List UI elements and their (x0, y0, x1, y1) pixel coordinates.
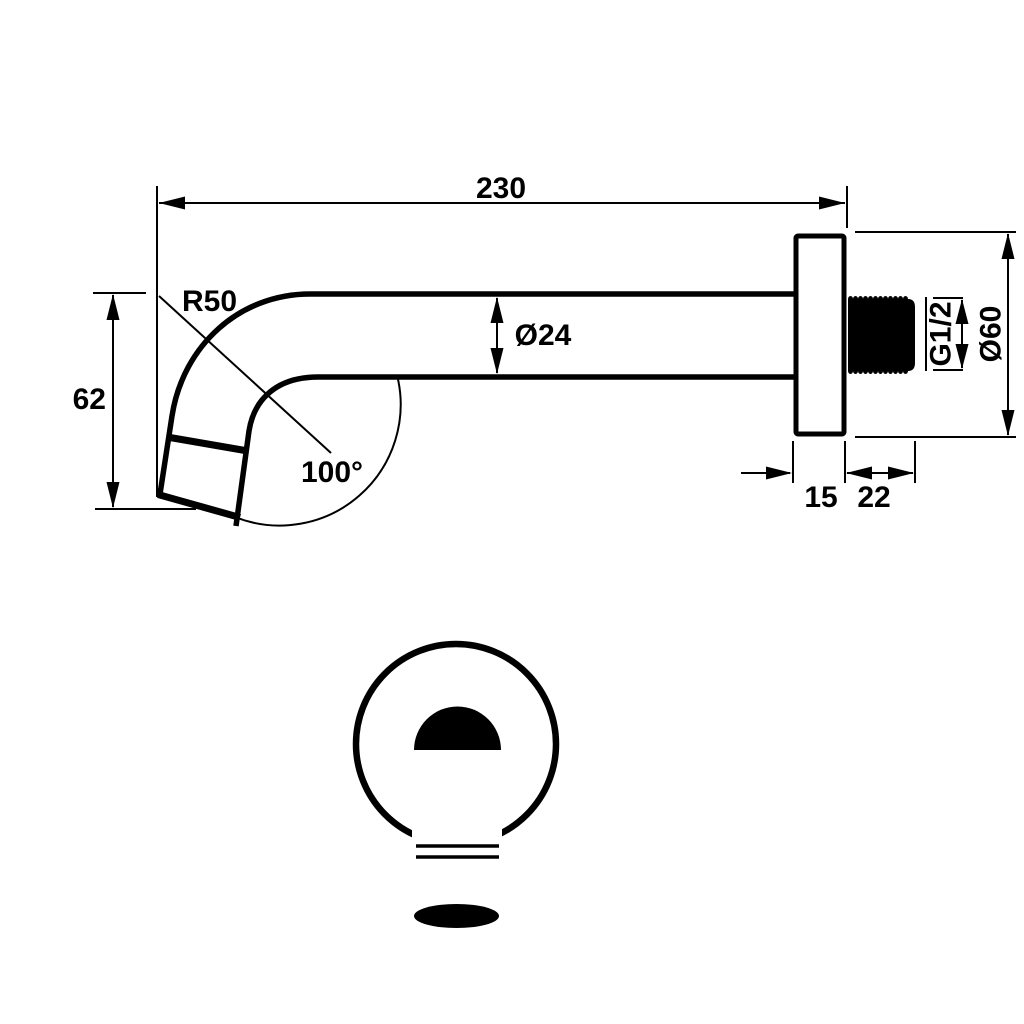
arrowhead-right-of-22 (888, 467, 914, 480)
thread (848, 296, 915, 374)
dim-flange-depth-and-thread-length: 15 22 (741, 441, 915, 514)
pipe-inner-edge (236, 377, 796, 526)
arrowhead-up (491, 297, 504, 323)
label-bend-radius: R50 (182, 285, 237, 318)
arrowhead-down (491, 348, 504, 374)
arrowhead-right-into-15 (766, 467, 792, 480)
front-view (356, 644, 556, 928)
shower-arm-technical-drawing: 230 R50 Ø24 62 100° (0, 0, 1024, 1024)
label-drop-height: 62 (73, 383, 106, 416)
dim-pipe-diameter: Ø24 (491, 297, 572, 374)
arrowhead-left (159, 197, 185, 210)
label-flange-diameter: Ø60 (975, 306, 1008, 363)
arrowhead-left-of-22 (846, 467, 872, 480)
label-thread-length: 22 (857, 481, 890, 514)
drawing-canvas: 230 R50 Ø24 62 100° (0, 0, 1024, 1024)
arrowhead-up (107, 294, 120, 320)
arrowhead-up (1002, 233, 1015, 259)
spout-collar-line (167, 437, 248, 451)
label-flange-depth: 15 (804, 481, 837, 514)
outlet-opening (414, 904, 499, 928)
label-length: 230 (476, 172, 526, 205)
dim-thread-size: G1/2 (925, 297, 969, 371)
label-thread-size: G1/2 (925, 301, 958, 366)
label-bend-angle: 100° (301, 456, 363, 489)
arrowhead-down (1002, 410, 1015, 436)
arrowhead-down (107, 482, 120, 508)
label-pipe-diameter: Ø24 (515, 319, 572, 352)
angle-arc (235, 375, 401, 526)
pipe-outer-edge (160, 294, 796, 494)
tube-mask (412, 747, 502, 913)
dim-length: 230 (157, 172, 847, 497)
arrowhead-right (819, 197, 845, 210)
side-view: 230 R50 Ø24 62 100° (73, 172, 1016, 526)
spout-end-face (158, 495, 240, 518)
wall-flange (796, 236, 844, 434)
